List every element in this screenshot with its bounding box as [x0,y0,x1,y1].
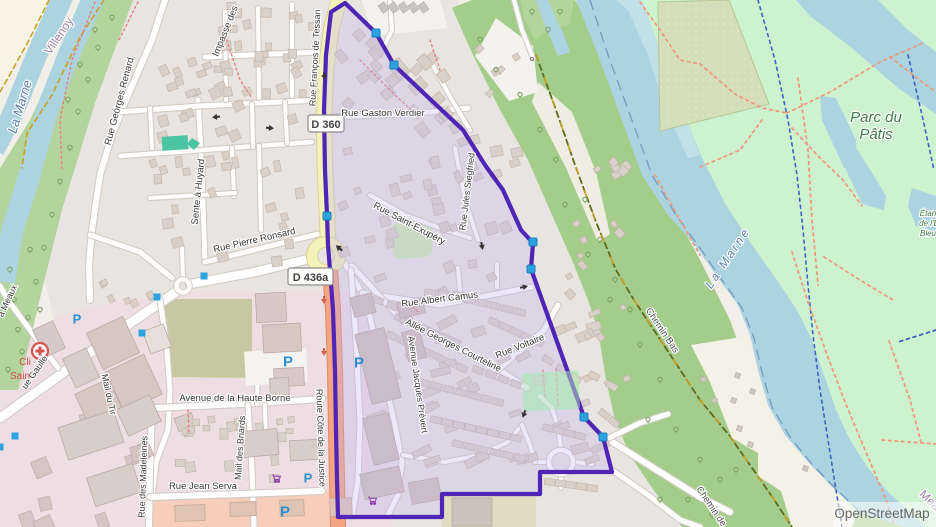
svg-text:OpenStreetMap: OpenStreetMap [834,506,929,521]
svg-text:Étan: Étan [920,209,936,218]
svg-text:Rue Jean Serva: Rue Jean Serva [169,481,238,492]
svg-text:Avenue de la Haute Borne: Avenue de la Haute Borne [179,393,290,404]
svg-text:Sain: Sain [10,371,30,382]
svg-text:de l'É: de l'É [919,219,936,228]
svg-text:Bleu: Bleu [920,229,936,238]
svg-text:P: P [280,503,290,520]
svg-text:P: P [304,471,313,486]
svg-text:D 436a: D 436a [293,272,329,284]
svg-text:Rue Gaston Verdier: Rue Gaston Verdier [341,108,424,119]
svg-text:P: P [283,353,293,370]
svg-text:P: P [73,312,82,327]
svg-text:Parc du: Parc du [850,109,902,126]
svg-text:Pâtis: Pâtis [859,126,893,143]
svg-text:D 360: D 360 [311,119,340,131]
svg-text:P: P [354,354,364,371]
svg-text:Cli: Cli [19,357,31,368]
